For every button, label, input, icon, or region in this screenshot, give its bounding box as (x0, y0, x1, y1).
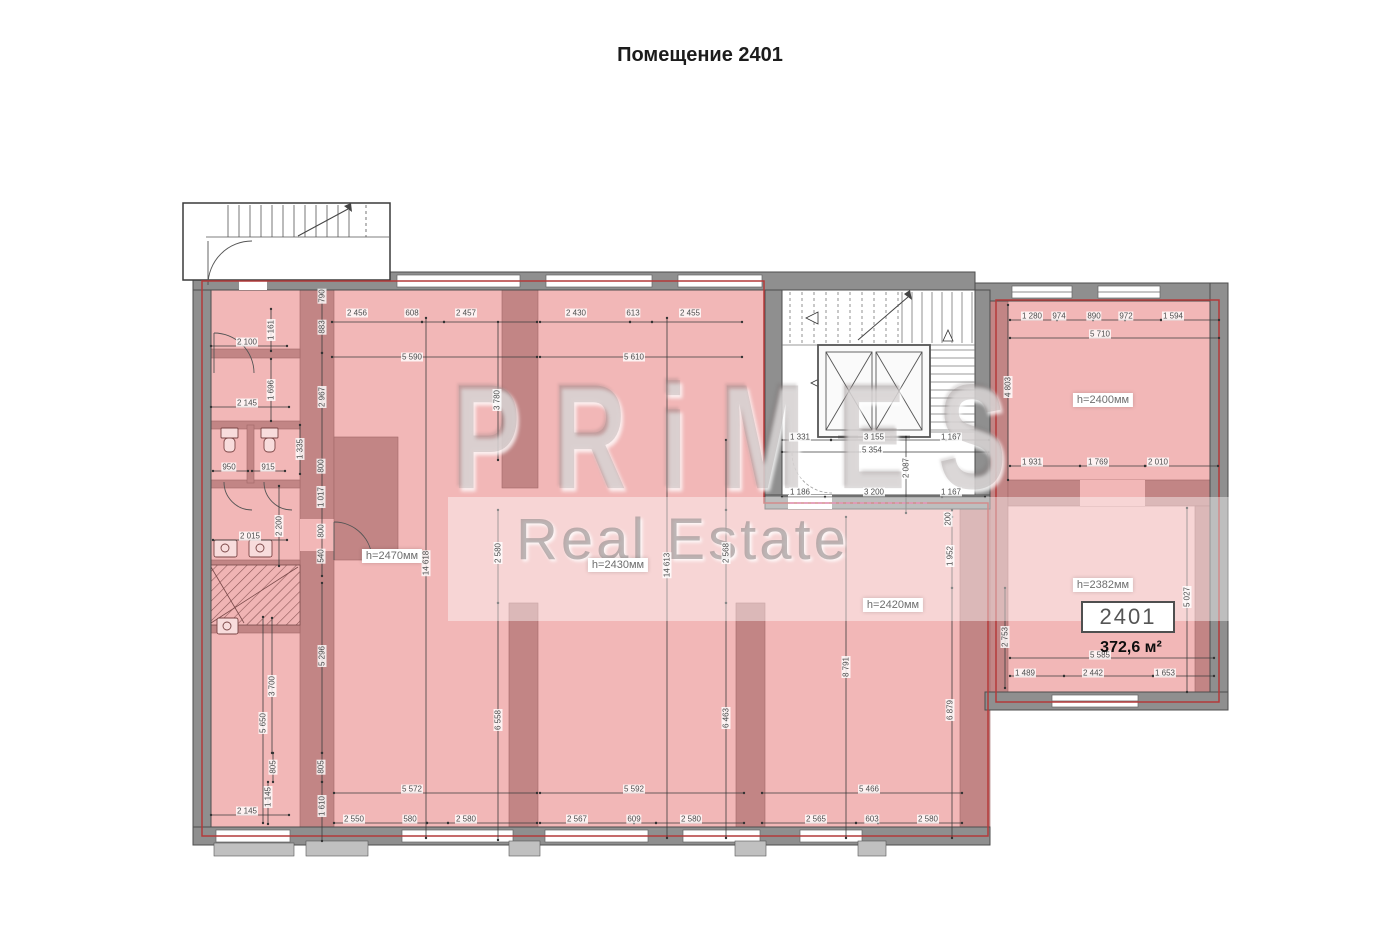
dimension-label: 5 592 (623, 785, 645, 794)
dimension-label: 540 (317, 548, 326, 563)
dimension-label: 1 952 (946, 545, 955, 567)
dimension-label: 1 931 (1021, 458, 1043, 467)
dimension-label: 2 456 (346, 309, 368, 318)
dimension-label: 1 594 (1162, 312, 1184, 321)
dimension-label: 608 (404, 309, 419, 318)
dimension-label: 2 010 (1147, 458, 1169, 467)
dimension-label: 2 567 (566, 815, 588, 824)
dimension-label: 2 442 (1082, 669, 1104, 678)
dimension-label: 5 650 (259, 712, 268, 734)
dimension-label: 2 100 (236, 338, 258, 347)
dimension-label: 5 354 (861, 446, 883, 455)
room-height-label: h=2430мм (588, 558, 648, 572)
dimension-label: 5 027 (1183, 586, 1192, 608)
dimension-label: 5 610 (623, 353, 645, 362)
dimension-label: 3 780 (493, 389, 502, 411)
dimension-label: 5 710 (1089, 330, 1111, 339)
dimension-label: 1 769 (1087, 458, 1109, 467)
dimension-label: 6 879 (946, 699, 955, 721)
dimension-label: 800 (317, 458, 326, 473)
dimension-label: 2 430 (565, 309, 587, 318)
dimension-label: 4 803 (1004, 376, 1013, 398)
dimension-label: 2 455 (679, 309, 701, 318)
dimension-label: 2 753 (1001, 626, 1010, 648)
dimension-label: 2 967 (318, 386, 327, 408)
room-height-label: h=2382мм (1073, 578, 1133, 592)
dimension-label: 972 (1118, 312, 1133, 321)
dimension-label: 5 572 (401, 785, 423, 794)
room-height-label: h=2400мм (1073, 393, 1133, 407)
dimension-label: 5 296 (318, 645, 327, 667)
dimension-label: 2 145 (236, 807, 258, 816)
dimension-label: 2 015 (239, 532, 261, 541)
dimension-label: 1 161 (267, 319, 276, 341)
dimension-label: 805 (269, 759, 278, 774)
dimension-label: 14 618 (422, 550, 431, 576)
dimension-label: 974 (1051, 312, 1066, 321)
room-height-label: h=2420мм (863, 598, 923, 612)
dimension-label: 200 (944, 511, 953, 526)
floor-plan-page: Помещение 2401 (0, 0, 1400, 949)
dimension-label: 2 550 (343, 815, 365, 824)
dimension-label: 800 (317, 523, 326, 538)
dimension-label: 609 (626, 815, 641, 824)
dimension-label: 2 087 (902, 457, 911, 479)
dimension-label: 2 200 (275, 515, 284, 537)
dimension-label: 6 463 (722, 707, 731, 729)
dimension-label: 2 580 (494, 542, 503, 564)
unit-number-box: 2401 (1081, 601, 1175, 633)
labels-layer: 2 4566082 4575 5902 4306132 4555 6101 28… (0, 0, 1400, 949)
dimension-label: 580 (402, 815, 417, 824)
dimension-label: 1 145 (264, 786, 273, 808)
dimension-label: 1 489 (1014, 669, 1036, 678)
dimension-label: 883 (318, 319, 327, 334)
dimension-label: 1 186 (789, 488, 811, 497)
dimension-label: 1 167 (940, 488, 962, 497)
dimension-label: 2 580 (455, 815, 477, 824)
dimension-label: 14 613 (663, 552, 672, 578)
dimension-label: 5 590 (401, 353, 423, 362)
dimension-label: 2 145 (236, 399, 258, 408)
dimension-label: 2 565 (805, 815, 827, 824)
dimension-label: 790 (318, 288, 327, 303)
dimension-label: 890 (1086, 312, 1101, 321)
dimension-label: 3 200 (863, 488, 885, 497)
dimension-label: 950 (221, 463, 236, 472)
dimension-label: 603 (864, 815, 879, 824)
dimension-label: 3 700 (268, 675, 277, 697)
dimension-label: 1 610 (318, 795, 327, 817)
dimension-label: 915 (260, 463, 275, 472)
dimension-label: 1 653 (1154, 669, 1176, 678)
dimension-label: 3 155 (863, 433, 885, 442)
dimension-label: 8 791 (842, 656, 851, 678)
room-height-label: h=2470мм (362, 549, 422, 563)
dimension-label: 1 335 (296, 438, 305, 460)
dimension-label: 6 558 (494, 709, 503, 731)
dimension-label: 2 457 (455, 309, 477, 318)
unit-area-label: 372,6 м² (1100, 639, 1162, 657)
dimension-label: 1 017 (317, 486, 326, 508)
dimension-label: 805 (317, 759, 326, 774)
dimension-label: 1 280 (1021, 312, 1043, 321)
dimension-label: 1 696 (267, 379, 276, 401)
dimension-label: 1 331 (789, 433, 811, 442)
dimension-label: 2 568 (722, 542, 731, 564)
dimension-label: 5 466 (858, 785, 880, 794)
dimension-label: 613 (625, 309, 640, 318)
dimension-label: 1 167 (940, 433, 962, 442)
dimension-label: 2 580 (917, 815, 939, 824)
dimension-label: 2 580 (680, 815, 702, 824)
